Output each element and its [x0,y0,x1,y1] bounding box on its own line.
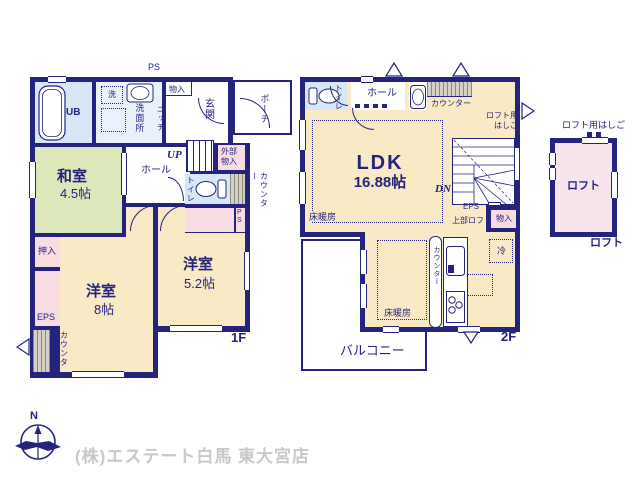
hall-label-2f: ホール [367,88,397,100]
closet-band-1f [185,208,245,232]
ldk-size-label: 16.88帖 [325,174,435,191]
loft-ladder-mark [587,132,605,138]
stairs-up-1f [186,140,214,172]
bathtub-icon [38,85,66,141]
genkan-label: 玄関 [202,98,214,126]
balcony-door-mark [463,331,479,344]
dotted-space [467,274,493,296]
hall-label-1f: ホール [141,165,171,177]
stove-icon [445,290,466,324]
fridge-label: 冷 [497,246,506,256]
up-label: UP [167,149,182,162]
toilet-label-1f: トイレ [186,176,195,203]
yoshitsu52-label: 洋室 [183,256,213,273]
monoire-top-label: 物入 [169,85,185,94]
counter-top-2f [427,82,472,97]
senmenjo-label: 洗面所 [134,103,144,141]
loft-caption: ロフト [590,237,623,250]
wall-ps-divider [234,208,236,232]
loft-ladder-label-2f-line1: ロフト用 [486,111,518,120]
sink-icon-2f [409,84,427,110]
floor-heating-label-2: 床暖房 [384,308,411,318]
floor2-caption: 2F [501,330,516,345]
floor-heating-label-1: 床暖房 [309,212,336,222]
loft-ladder-label-2f-line2: はしご [494,121,518,130]
yoshitsu8-label: 洋室 [86,283,116,300]
ps-top-label: PS [148,62,160,72]
porch-label: ポーチ [259,94,269,136]
window [361,76,373,83]
washer-label: 洗 [108,90,116,99]
window [549,168,556,180]
eps-label-1f: EPS [37,312,55,322]
toilet-icon-1f [194,177,228,201]
eps-label-2f: EPS [463,202,479,211]
counter-top-label-2f: カウンター [431,99,471,108]
company-footer-text: (株)エステート白馬 東大宮店 [75,447,310,467]
balcony-label: バルコニー [340,344,405,359]
window [514,148,520,180]
washitsu-label: 和室 [57,168,87,185]
vent-icon [521,102,535,120]
counter-left-label: カウンター [50,331,68,375]
stairs-down-2f [452,138,515,205]
toilet-label-2f: トイレ [334,84,343,111]
yoshitsu8-size-label: 8帖 [94,303,114,318]
sliding-door-washitsu [121,153,127,195]
window [549,153,556,165]
floor-plan-canvas: ポーチ PS 物入 UB 洗 洗面所 [0,0,640,480]
window [72,371,124,378]
counter-left-1f [33,330,50,372]
gaibu-monoire-label: 外部物入 [221,147,239,167]
monoire-label-2f: 物入 [496,214,512,223]
counter-right-1f [230,174,245,204]
window [299,120,306,150]
kitchen-counter-label: カウンター [432,246,440,290]
niche-label: ニッチ [156,105,165,135]
dn-label: DN [435,183,451,196]
compass-north-icon [12,412,64,466]
ldk-label: LDK [325,152,435,175]
kitchen-sink-icon [445,245,466,277]
ub-label: UB [66,107,80,119]
senmenjo-dotted-box [101,108,126,132]
loft-room-label: ロフト [560,180,607,193]
vent-icon [385,62,403,77]
vent-icon [452,62,470,77]
window [611,172,618,198]
compass-n-label: N [30,410,38,423]
window [48,76,66,83]
counter-right-label: カウンター [250,172,268,216]
loft-ladder-label: ロフト用はしご [562,120,625,130]
window [360,284,367,308]
oshiire-label: 押入 [38,246,56,256]
washitsu-size-label: 4.5帖 [60,187,91,202]
window [582,137,608,144]
vent-icon [16,338,30,356]
window [170,325,222,332]
window [299,172,306,204]
yoshitsu52-size-label: 5.2帖 [184,277,215,292]
floor1-caption: 1F [231,331,246,346]
window [383,326,399,333]
window [244,252,250,290]
upper-loft-label: 上部ロフト [452,216,492,225]
sink-icon-1f [126,83,154,103]
window [360,250,367,274]
window [29,162,36,198]
ps-right-label: PS [237,209,245,224]
